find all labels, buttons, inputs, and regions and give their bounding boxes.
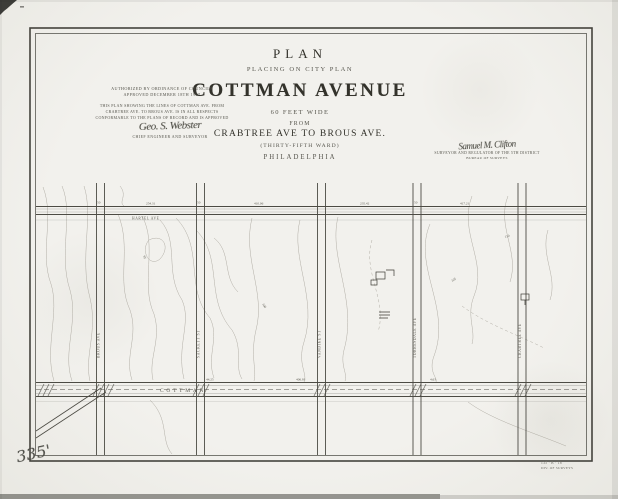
dimension: 406.93 bbox=[296, 377, 306, 381]
cottman-avenue-street bbox=[36, 383, 586, 402]
dimension: 50 bbox=[197, 201, 201, 205]
cross-street-label: TORRESDALE AVE bbox=[413, 317, 417, 358]
dimension: 254.31 bbox=[146, 202, 156, 206]
dimension: 4.63 bbox=[430, 377, 436, 381]
scan-artifacts bbox=[0, 0, 618, 499]
elevation-labels: 95 100 105 110 bbox=[142, 234, 510, 309]
dimension: 50 bbox=[414, 201, 418, 205]
cross-street-label: SACKETT ST bbox=[197, 330, 201, 358]
top-street-label: HARTEL AVE bbox=[132, 217, 160, 221]
diagonal-street bbox=[36, 388, 106, 438]
elevation: 105 bbox=[451, 277, 458, 283]
building-icon bbox=[386, 270, 394, 276]
corner-blot bbox=[0, 0, 17, 15]
contour-lines bbox=[43, 186, 566, 454]
building-icon bbox=[371, 280, 377, 285]
dimension: 410.06 bbox=[254, 202, 264, 206]
elevation: 110 bbox=[504, 234, 510, 239]
cross-street-label: CRABTREE AVE bbox=[518, 323, 522, 358]
street-grid bbox=[36, 183, 586, 455]
elevation: 95 bbox=[142, 255, 147, 260]
top-street bbox=[36, 207, 586, 221]
building-icon bbox=[376, 272, 385, 279]
cross-streets bbox=[97, 183, 527, 455]
plan-drawing: HARTEL AVE COTTMAN BROUS AVE SACKETT ST … bbox=[0, 0, 618, 499]
dimension: 417.21 bbox=[460, 202, 470, 206]
building-icon bbox=[521, 294, 529, 300]
cottman-street-label: COTTMAN bbox=[160, 388, 206, 394]
dimension: 235.42 bbox=[360, 202, 370, 206]
dimension: 44.25 bbox=[206, 377, 214, 381]
elevation: 100 bbox=[261, 303, 267, 310]
dimension: 50 bbox=[97, 201, 101, 205]
cross-street-label: VANDIKE ST bbox=[318, 330, 322, 358]
intersection-hatching bbox=[38, 384, 531, 396]
cross-street-label: BROUS AVE bbox=[97, 332, 101, 358]
hatched-structure-icon bbox=[379, 312, 390, 318]
building-symbols bbox=[371, 270, 529, 318]
scanned-plan-sheet: HARTEL AVE COTTMAN BROUS AVE SACKETT ST … bbox=[0, 0, 618, 499]
street-labels: HARTEL AVE COTTMAN BROUS AVE SACKETT ST … bbox=[97, 217, 523, 394]
